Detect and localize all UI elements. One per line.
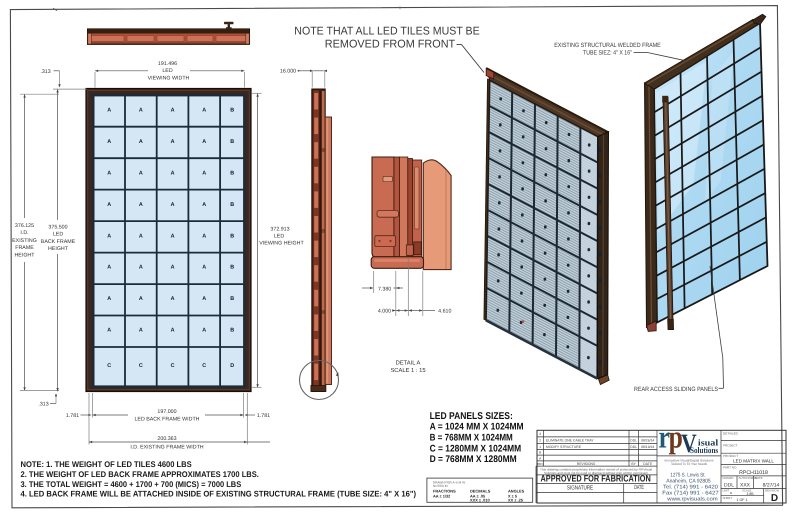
svg-text:191.496: 191.496 [158, 61, 177, 67]
svg-text:DDL: DDL [630, 439, 637, 443]
svg-text:A: A [107, 202, 111, 208]
svg-text:1:85: 1:85 [747, 492, 754, 496]
svg-text:D: D [230, 363, 234, 369]
svg-text:.313: .313 [38, 401, 48, 407]
svg-text:AA ± 1/32: AA ± 1/32 [433, 493, 451, 498]
svg-text:DATE: DATE [634, 484, 644, 491]
svg-text:2. THE WEIGHT OF LED BACK FRAM: 2. THE WEIGHT OF LED BACK FRAME APPROXIM… [21, 470, 259, 479]
svg-text:D = 768MM X 1280MM: D = 768MM X 1280MM [430, 454, 517, 465]
svg-text:C: C [202, 363, 206, 369]
svg-text:NOTED IN: NOTED IN [433, 484, 448, 488]
svg-text:A: A [202, 170, 206, 176]
svg-text:PART NO: PART NO [723, 466, 737, 470]
svg-text:3. THE TOTAL WEIGHT = 4600 + 1: 3. THE TOTAL WEIGHT = 4600 + 1700 + 700 … [21, 480, 242, 489]
svg-text:LED BACK FRAME WIDTH: LED BACK FRAME WIDTH [134, 417, 199, 423]
svg-text:SIGNATURE: SIGNATURE [567, 485, 593, 492]
svg-text:A: A [202, 265, 206, 271]
svg-text:200.363: 200.363 [157, 436, 176, 442]
svg-text:A: A [202, 328, 206, 334]
svg-text:A: A [139, 328, 143, 334]
svg-text:SHEET: SHEET [723, 496, 733, 500]
svg-text:A: A [139, 265, 143, 271]
svg-text:C: C [107, 363, 111, 369]
svg-text:A: A [202, 139, 206, 145]
svg-text:SCALE 1 : 15: SCALE 1 : 15 [390, 367, 425, 374]
svg-text:372.913: 372.913 [270, 226, 289, 232]
svg-text:376.125: 376.125 [15, 223, 34, 229]
svg-text:XX ± .25: XX ± .25 [508, 497, 524, 502]
svg-text:A: A [202, 107, 206, 113]
svg-text:A: A [202, 202, 206, 208]
svg-text:197.000: 197.000 [157, 409, 176, 415]
svg-text:NOTE: 1. THE WEIGHT OF LED TIL: NOTE: 1. THE WEIGHT OF LED TILES 4600 LB… [21, 460, 193, 469]
svg-text:A: A [107, 233, 111, 239]
svg-text:LED: LED [274, 233, 284, 239]
svg-text:NOTE THAT ALL LED TILES MUST B: NOTE THAT ALL LED TILES MUST BE [294, 26, 480, 38]
svg-text:VIEWING WIDTH: VIEWING WIDTH [148, 75, 190, 81]
svg-text:ELIMINATE ONE CABLE TRAY: ELIMINATE ONE CABLE TRAY [546, 439, 594, 443]
svg-text:REV: REV [537, 462, 543, 466]
svg-text:EXISTING STRUCTURAL WELDED FRA: EXISTING STRUCTURAL WELDED FRAME [554, 42, 661, 49]
svg-text:UNIT: UNIT [723, 489, 730, 493]
svg-text:Solutions: Solutions [690, 445, 719, 455]
svg-text:B: B [230, 296, 234, 302]
svg-text:B: B [230, 202, 234, 208]
svg-text:APPROVED FOR FABRICATION: APPROVED FOR FABRICATION [541, 474, 652, 484]
svg-text:BY: BY [631, 462, 636, 466]
svg-text:REVISIONS: REVISIONS [577, 462, 596, 466]
svg-text:DATE: DATE [755, 476, 763, 480]
svg-text:1.781: 1.781 [257, 413, 270, 419]
svg-text:Tailored To Fit Your Needs: Tailored To Fit Your Needs [671, 462, 707, 466]
svg-text:.313: .313 [40, 69, 50, 75]
svg-text:4.610: 4.610 [438, 309, 451, 315]
svg-text:XXX: XXX [740, 482, 751, 488]
svg-text:A: A [107, 170, 111, 176]
svg-text:HEIGHT: HEIGHT [14, 253, 35, 259]
svg-text:A = 1024 MM X 1024MM: A = 1024 MM X 1024MM [430, 422, 524, 433]
svg-text:www.rpvisuals.com: www.rpvisuals.com [666, 497, 718, 503]
svg-text:DETAILED: DETAILED [723, 431, 739, 435]
svg-text:A: A [202, 296, 206, 302]
svg-text:16.000: 16.000 [280, 69, 296, 75]
svg-text:A: A [171, 233, 175, 239]
svg-text:A: A [171, 139, 175, 145]
svg-text:A: A [171, 170, 175, 176]
svg-text:VIEWING HEIGHT: VIEWING HEIGHT [259, 241, 304, 247]
svg-text:B: B [230, 107, 234, 113]
svg-text:A: A [139, 107, 143, 113]
svg-text:B: B [230, 233, 234, 239]
svg-text:4. LED BACK FRAME WILL BE ATTA: 4. LED BACK FRAME WILL BE ATTACHED INSID… [21, 489, 417, 498]
svg-text:B = 768MM X 1024MM: B = 768MM X 1024MM [430, 433, 513, 444]
svg-text:A: A [171, 202, 175, 208]
svg-text:A: A [107, 107, 111, 113]
svg-text:DDL: DDL [630, 445, 637, 449]
svg-text:I.D.: I.D. [20, 230, 28, 236]
svg-text:A: A [139, 296, 143, 302]
svg-text:LED: LED [162, 68, 172, 74]
svg-text:B: B [230, 139, 234, 145]
svg-text:A: A [139, 233, 143, 239]
svg-text:1 OF 1: 1 OF 1 [737, 498, 748, 502]
svg-text:4.000: 4.000 [378, 309, 391, 315]
svg-text:A: A [107, 265, 111, 271]
svg-text:B: B [230, 328, 234, 334]
svg-text:A: A [139, 202, 143, 208]
svg-text:A: A [171, 265, 175, 271]
svg-text:XXX ± .010: XXX ± .010 [470, 497, 490, 502]
svg-text:C = 1280MM X 1024MM: C = 1280MM X 1024MM [430, 443, 522, 454]
svg-text:D: D [771, 493, 778, 504]
svg-text:C: C [139, 363, 143, 369]
svg-text:A: A [107, 296, 111, 302]
svg-text:FRAME: FRAME [15, 245, 34, 251]
svg-text:LED: LED [53, 232, 63, 238]
svg-text:B: B [230, 170, 234, 176]
svg-text:DRAWN: DRAWN [723, 476, 734, 480]
svg-text:REVISION: REVISION [765, 489, 779, 493]
svg-text:A: A [171, 328, 175, 334]
svg-text:1: 1 [539, 445, 541, 449]
svg-text:A: A [107, 139, 111, 145]
svg-text:A: A [139, 139, 143, 145]
svg-text:1.781: 1.781 [66, 413, 79, 419]
svg-text:8/27/14: 8/27/14 [763, 482, 780, 488]
svg-text:3: 3 [539, 432, 541, 436]
svg-text:A: A [107, 328, 111, 334]
svg-text:LED PANELS SIZES:: LED PANELS SIZES: [430, 411, 513, 422]
svg-text:HEIGHT: HEIGHT [48, 246, 69, 252]
svg-text:B: B [230, 265, 234, 271]
svg-text:BACK FRAME: BACK FRAME [41, 239, 76, 245]
svg-text:375.500: 375.500 [48, 224, 67, 230]
svg-text:I.D. EXISTING FRAME WIDTH: I.D. EXISTING FRAME WIDTH [130, 445, 203, 451]
svg-text:08/19/14: 08/19/14 [641, 445, 654, 449]
svg-text:EXISTING: EXISTING [12, 238, 37, 244]
svg-text:DDL: DDL [724, 482, 734, 488]
svg-text:REMOVED FROM FRONT: REMOVED FROM FRONT [325, 39, 455, 51]
svg-text:DETAIL A: DETAIL A [396, 361, 421, 367]
svg-text:C: C [171, 363, 175, 369]
svg-text:7.380: 7.380 [378, 286, 391, 292]
svg-text:08/26/14: 08/26/14 [641, 439, 654, 443]
svg-text:PROJECT: PROJECT [723, 444, 738, 448]
svg-text:B: B [539, 451, 541, 455]
svg-text:PRODUCT: PRODUCT [723, 454, 738, 458]
svg-text:TUBE SIEZ: 4" X 16": TUBE SIEZ: 4" X 16" [583, 50, 632, 57]
svg-text:2: 2 [539, 439, 541, 443]
svg-text:LED MATRIX WALL: LED MATRIX WALL [733, 459, 774, 464]
svg-text:A: A [202, 233, 206, 239]
svg-text:A: A [171, 107, 175, 113]
svg-text:MODIFY STRUCTURE: MODIFY STRUCTURE [546, 445, 582, 449]
svg-text:DATE: DATE [643, 462, 653, 466]
svg-text:A: A [171, 296, 175, 302]
svg-text:A: A [139, 170, 143, 176]
svg-text:REAR ACCESS SLIDING PANELS: REAR ACCESS SLIDING PANELS [634, 386, 718, 393]
